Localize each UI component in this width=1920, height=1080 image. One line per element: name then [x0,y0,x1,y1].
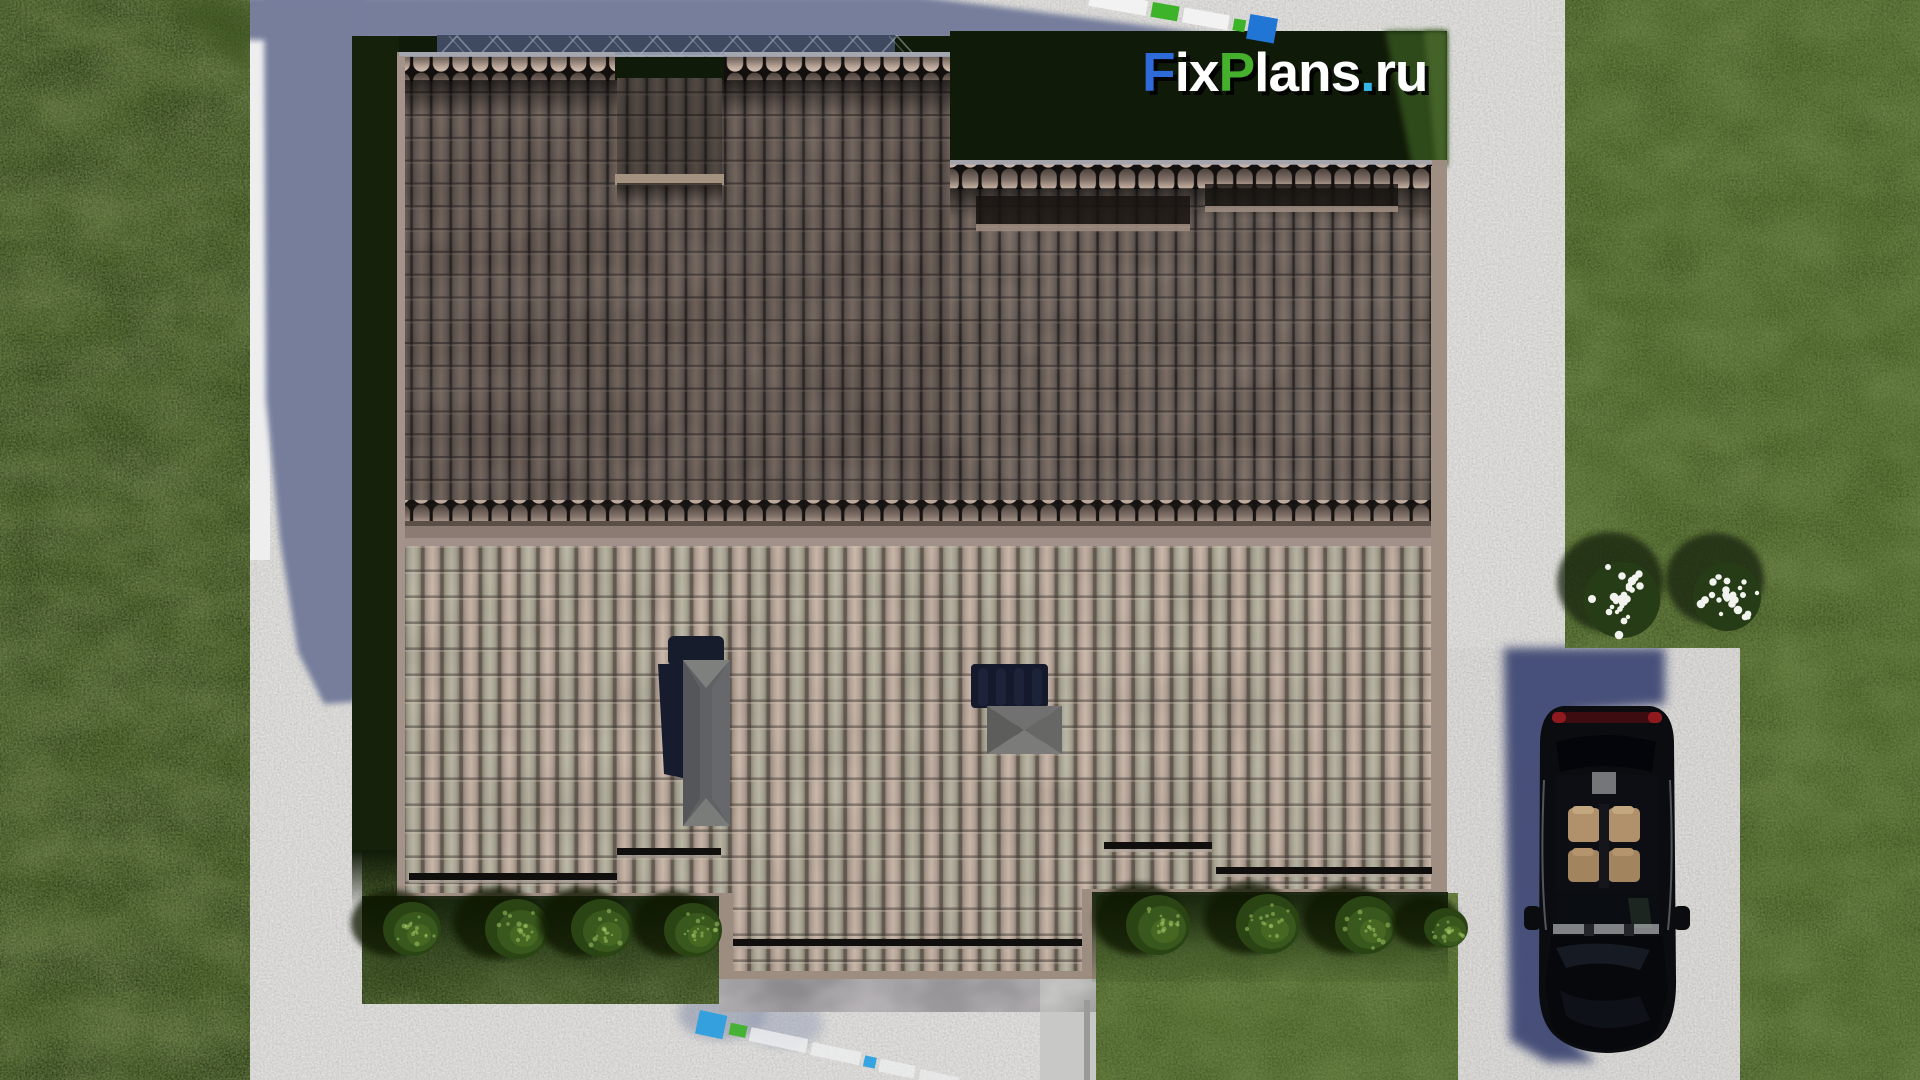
svg-text:FixPlans.ru: FixPlans.ru [1142,41,1428,103]
